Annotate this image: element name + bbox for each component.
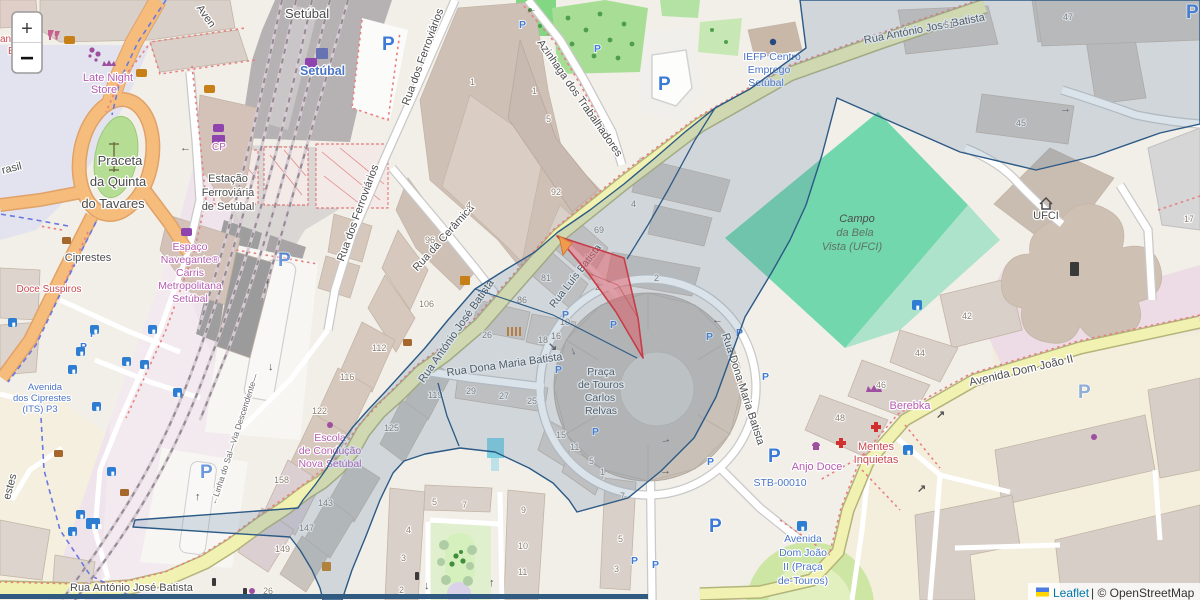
svg-text:Praceta: Praceta xyxy=(98,153,144,168)
svg-text:da Bela: da Bela xyxy=(836,227,873,239)
svg-text:P: P xyxy=(519,19,526,31)
svg-text:3: 3 xyxy=(401,553,406,563)
svg-text:149: 149 xyxy=(275,544,290,554)
svg-text:Avenida: Avenida xyxy=(28,382,63,393)
svg-text:dos Ciprestes: dos Ciprestes xyxy=(13,393,71,404)
svg-text:da Quinta: da Quinta xyxy=(90,174,147,189)
svg-text:▗▗: ▗▗ xyxy=(89,520,102,530)
svg-text:P: P xyxy=(594,43,601,55)
svg-text:P: P xyxy=(631,555,638,567)
svg-text:Berebka: Berebka xyxy=(890,400,932,412)
svg-text:116: 116 xyxy=(340,372,354,382)
svg-text:7: 7 xyxy=(462,500,467,510)
svg-text:do Tavares: do Tavares xyxy=(81,196,145,211)
svg-text:STB-00010: STB-00010 xyxy=(753,477,806,489)
svg-text:+: + xyxy=(21,18,33,40)
svg-text:112: 112 xyxy=(372,343,386,353)
svg-text:P: P xyxy=(707,456,714,468)
svg-text:Setúbal: Setúbal xyxy=(300,64,345,78)
svg-text:Campo: Campo xyxy=(839,213,874,225)
svg-text:II (Praça: II (Praça xyxy=(783,561,823,573)
svg-text:122: 122 xyxy=(312,406,327,416)
svg-text:Rua António José Batista: Rua António José Batista xyxy=(70,582,194,594)
svg-text:↓: ↓ xyxy=(268,361,274,373)
svg-text:Doce Suspiros: Doce Suspiros xyxy=(16,284,81,295)
svg-text:44: 44 xyxy=(915,348,925,358)
svg-text:Late Night: Late Night xyxy=(83,72,133,84)
svg-text:P: P xyxy=(768,446,781,467)
svg-text:Inquietas: Inquietas xyxy=(854,454,899,466)
svg-text:de Setúbal: de Setúbal xyxy=(202,201,255,213)
svg-text:Setúbal: Setúbal xyxy=(172,293,208,305)
svg-text:Anjo Doce: Anjo Doce xyxy=(792,461,843,473)
svg-text:Mentes: Mentes xyxy=(858,441,895,453)
svg-text:46: 46 xyxy=(876,380,886,390)
svg-text:5: 5 xyxy=(546,114,551,124)
svg-text:Vista (UFCI): Vista (UFCI) xyxy=(822,241,883,253)
svg-text:P: P xyxy=(382,34,395,55)
svg-text:↑: ↑ xyxy=(265,278,271,290)
svg-text:Avenida: Avenida xyxy=(784,533,822,545)
svg-text:↑: ↑ xyxy=(195,491,201,503)
svg-text:11: 11 xyxy=(518,567,527,577)
svg-text:an: an xyxy=(0,34,11,45)
svg-text:Estação: Estação xyxy=(208,173,248,185)
svg-text:P: P xyxy=(762,371,769,383)
svg-text:Ciprestes: Ciprestes xyxy=(65,252,112,264)
svg-text:1: 1 xyxy=(470,77,475,87)
svg-text:P: P xyxy=(278,250,291,271)
svg-text:P: P xyxy=(658,74,671,95)
svg-text:↓: ↓ xyxy=(424,580,430,592)
svg-text:↗: ↗ xyxy=(917,483,926,495)
svg-text:158: 158 xyxy=(274,475,289,485)
svg-text:UFCI: UFCI xyxy=(1033,210,1059,222)
svg-text:5: 5 xyxy=(618,534,623,544)
svg-text:17: 17 xyxy=(1184,214,1194,224)
svg-text:P: P xyxy=(1078,382,1091,403)
svg-text:1: 1 xyxy=(532,86,537,96)
svg-text:Ferroviária: Ferroviária xyxy=(202,187,255,199)
svg-text:96: 96 xyxy=(425,235,435,245)
svg-text:P: P xyxy=(652,559,659,571)
svg-text:de-Touros): de-Touros) xyxy=(778,575,828,587)
svg-text:Navegante®: Navegante® xyxy=(161,254,220,266)
svg-text:4: 4 xyxy=(466,200,471,210)
svg-text:| © OpenStreetMap: | © OpenStreetMap xyxy=(1091,586,1195,600)
svg-text:Espaço: Espaço xyxy=(172,241,207,253)
svg-text:42: 42 xyxy=(962,311,972,321)
svg-text:←: ← xyxy=(526,3,537,15)
svg-text:P: P xyxy=(200,462,213,483)
svg-text:Metropolitana: Metropolitana xyxy=(158,280,222,292)
svg-text:Leaflet: Leaflet xyxy=(1053,586,1090,600)
svg-text:3: 3 xyxy=(614,564,619,574)
svg-text:5: 5 xyxy=(432,497,437,507)
svg-text:9: 9 xyxy=(521,505,526,515)
svg-text:CP: CP xyxy=(212,142,226,153)
svg-text:−: − xyxy=(20,45,34,72)
svg-text:Store: Store xyxy=(91,84,117,96)
svg-text:92: 92 xyxy=(551,187,561,197)
svg-text:48: 48 xyxy=(835,413,845,423)
svg-text:P: P xyxy=(709,516,722,537)
svg-text:Escola: Escola xyxy=(314,432,346,444)
svg-text:Dom João: Dom João xyxy=(779,547,827,559)
svg-text:↗: ↗ xyxy=(936,409,945,421)
svg-text:4: 4 xyxy=(406,525,411,535)
svg-text:←: ← xyxy=(180,142,191,154)
svg-text:10: 10 xyxy=(518,541,528,551)
svg-text:106: 106 xyxy=(419,299,434,309)
svg-text:Carris: Carris xyxy=(176,267,204,279)
svg-text:2: 2 xyxy=(399,585,404,595)
svg-text:(ITS) P3: (ITS) P3 xyxy=(22,404,57,415)
svg-text:↑: ↑ xyxy=(489,577,495,589)
svg-text:Setúbal: Setúbal xyxy=(285,6,329,21)
